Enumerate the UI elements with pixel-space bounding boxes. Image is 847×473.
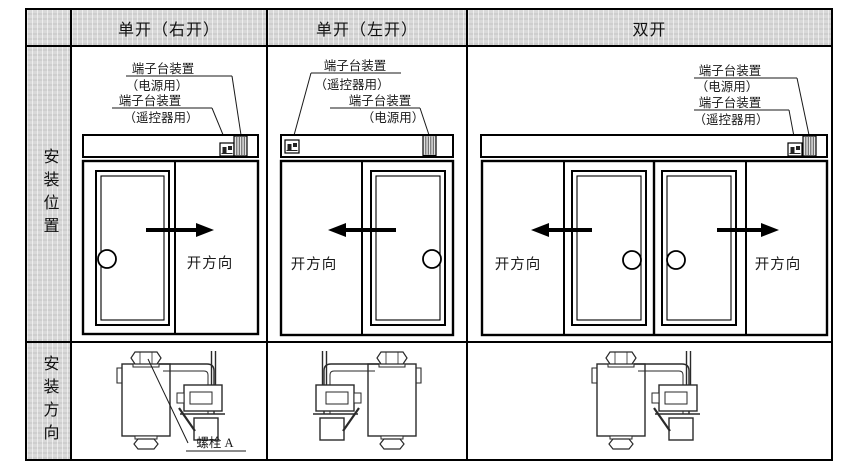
door-handle: [667, 251, 685, 269]
terminal-device-label: 端子台装置: [699, 95, 762, 110]
door-leaf-left: [572, 171, 646, 325]
door-handle: [423, 250, 441, 268]
door-leaf-right: [662, 171, 736, 325]
diagram-double-open: 端子台装置 （电源用） 端子台装置 （遥控器用）: [468, 47, 831, 341]
power-use-label: （电源用）: [362, 111, 425, 125]
terminal-device-label: 端子台装置: [119, 93, 182, 108]
open-direction-label: 开方向: [291, 256, 338, 273]
leader-line: [293, 73, 311, 139]
door-operator-device: [592, 351, 700, 449]
power-use-label: （电源用）: [126, 79, 189, 93]
terminal-device-label: 端子台装置: [132, 61, 195, 76]
remote-use-label: （遥控器用）: [693, 113, 768, 127]
terminal-device-label: 端子台装置: [324, 58, 387, 73]
device-sketch-double: [468, 343, 831, 459]
installation-table: 单开（右开） 单开（左开） 双开 安装位置 端子台装置 （电源用） 端子台装置 …: [25, 8, 833, 461]
terminal-device-label: 端子台装置: [699, 63, 762, 78]
column-header-label: 双开: [632, 16, 666, 40]
remote-terminal-box: [220, 143, 234, 156]
cell-direction-double: [468, 343, 831, 459]
power-terminal-box: [803, 136, 816, 156]
door-operator-device-mirrored: [313, 351, 421, 449]
remote-use-label: （遥控器用）: [314, 78, 389, 92]
cell-direction-single-left: [268, 343, 468, 459]
remote-terminal-box: [788, 143, 802, 156]
column-header-single-left: 单开（左开）: [268, 10, 468, 47]
door-leaf: [96, 171, 169, 325]
device-sketch-single-left: [268, 343, 466, 459]
door-rail: [481, 135, 827, 157]
device-sketch-single-right: 螺栓 A: [72, 343, 266, 459]
corner-cell: [27, 10, 72, 47]
column-header-single-right: 单开（右开）: [72, 10, 268, 47]
cell-position-single-left: 端子台装置 （遥控器用） 端子台装置 （电源用） 开方向: [268, 47, 468, 343]
diagram-single-right-open: 端子台装置 （电源用） 端子台装置 （遥控器用） 开方向: [72, 47, 266, 341]
cell-position-single-right: 端子台装置 （电源用） 端子台装置 （遥控器用） 开方向: [72, 47, 268, 343]
power-use-label: （电源用）: [696, 80, 759, 94]
row-header-install-position: 安装位置: [27, 47, 72, 343]
cell-direction-single-right: 螺栓 A: [72, 343, 268, 459]
row-header-label: 安装方向: [37, 355, 61, 447]
power-terminal-box: [234, 136, 247, 156]
diagram-single-left-open: 端子台装置 （遥控器用） 端子台装置 （电源用） 开方向: [268, 47, 466, 341]
column-header-label: 单开（左开）: [316, 16, 418, 40]
remote-use-label: （遥控器用）: [123, 111, 198, 125]
door-leaf: [371, 171, 445, 325]
bolt-a-label: 螺栓 A: [196, 435, 233, 450]
column-header-label: 单开（右开）: [118, 16, 220, 40]
row-header-label: 安装位置: [37, 148, 61, 240]
leader-line: [797, 78, 809, 135]
power-terminal-box: [423, 136, 436, 156]
door-operator-device: [117, 351, 225, 449]
remote-terminal-box: [285, 140, 299, 153]
open-direction-label: 开方向: [187, 255, 234, 272]
row-header-install-direction: 安装方向: [27, 343, 72, 459]
open-direction-label: 开方向: [755, 256, 802, 273]
terminal-device-label: 端子台装置: [349, 93, 412, 108]
door-handle: [98, 250, 116, 268]
cell-position-double: 端子台装置 （电源用） 端子台装置 （遥控器用）: [468, 47, 831, 343]
door-handle: [623, 251, 641, 269]
column-header-double: 双开: [468, 10, 831, 47]
leader-line: [232, 76, 241, 135]
open-direction-label: 开方向: [495, 256, 542, 273]
